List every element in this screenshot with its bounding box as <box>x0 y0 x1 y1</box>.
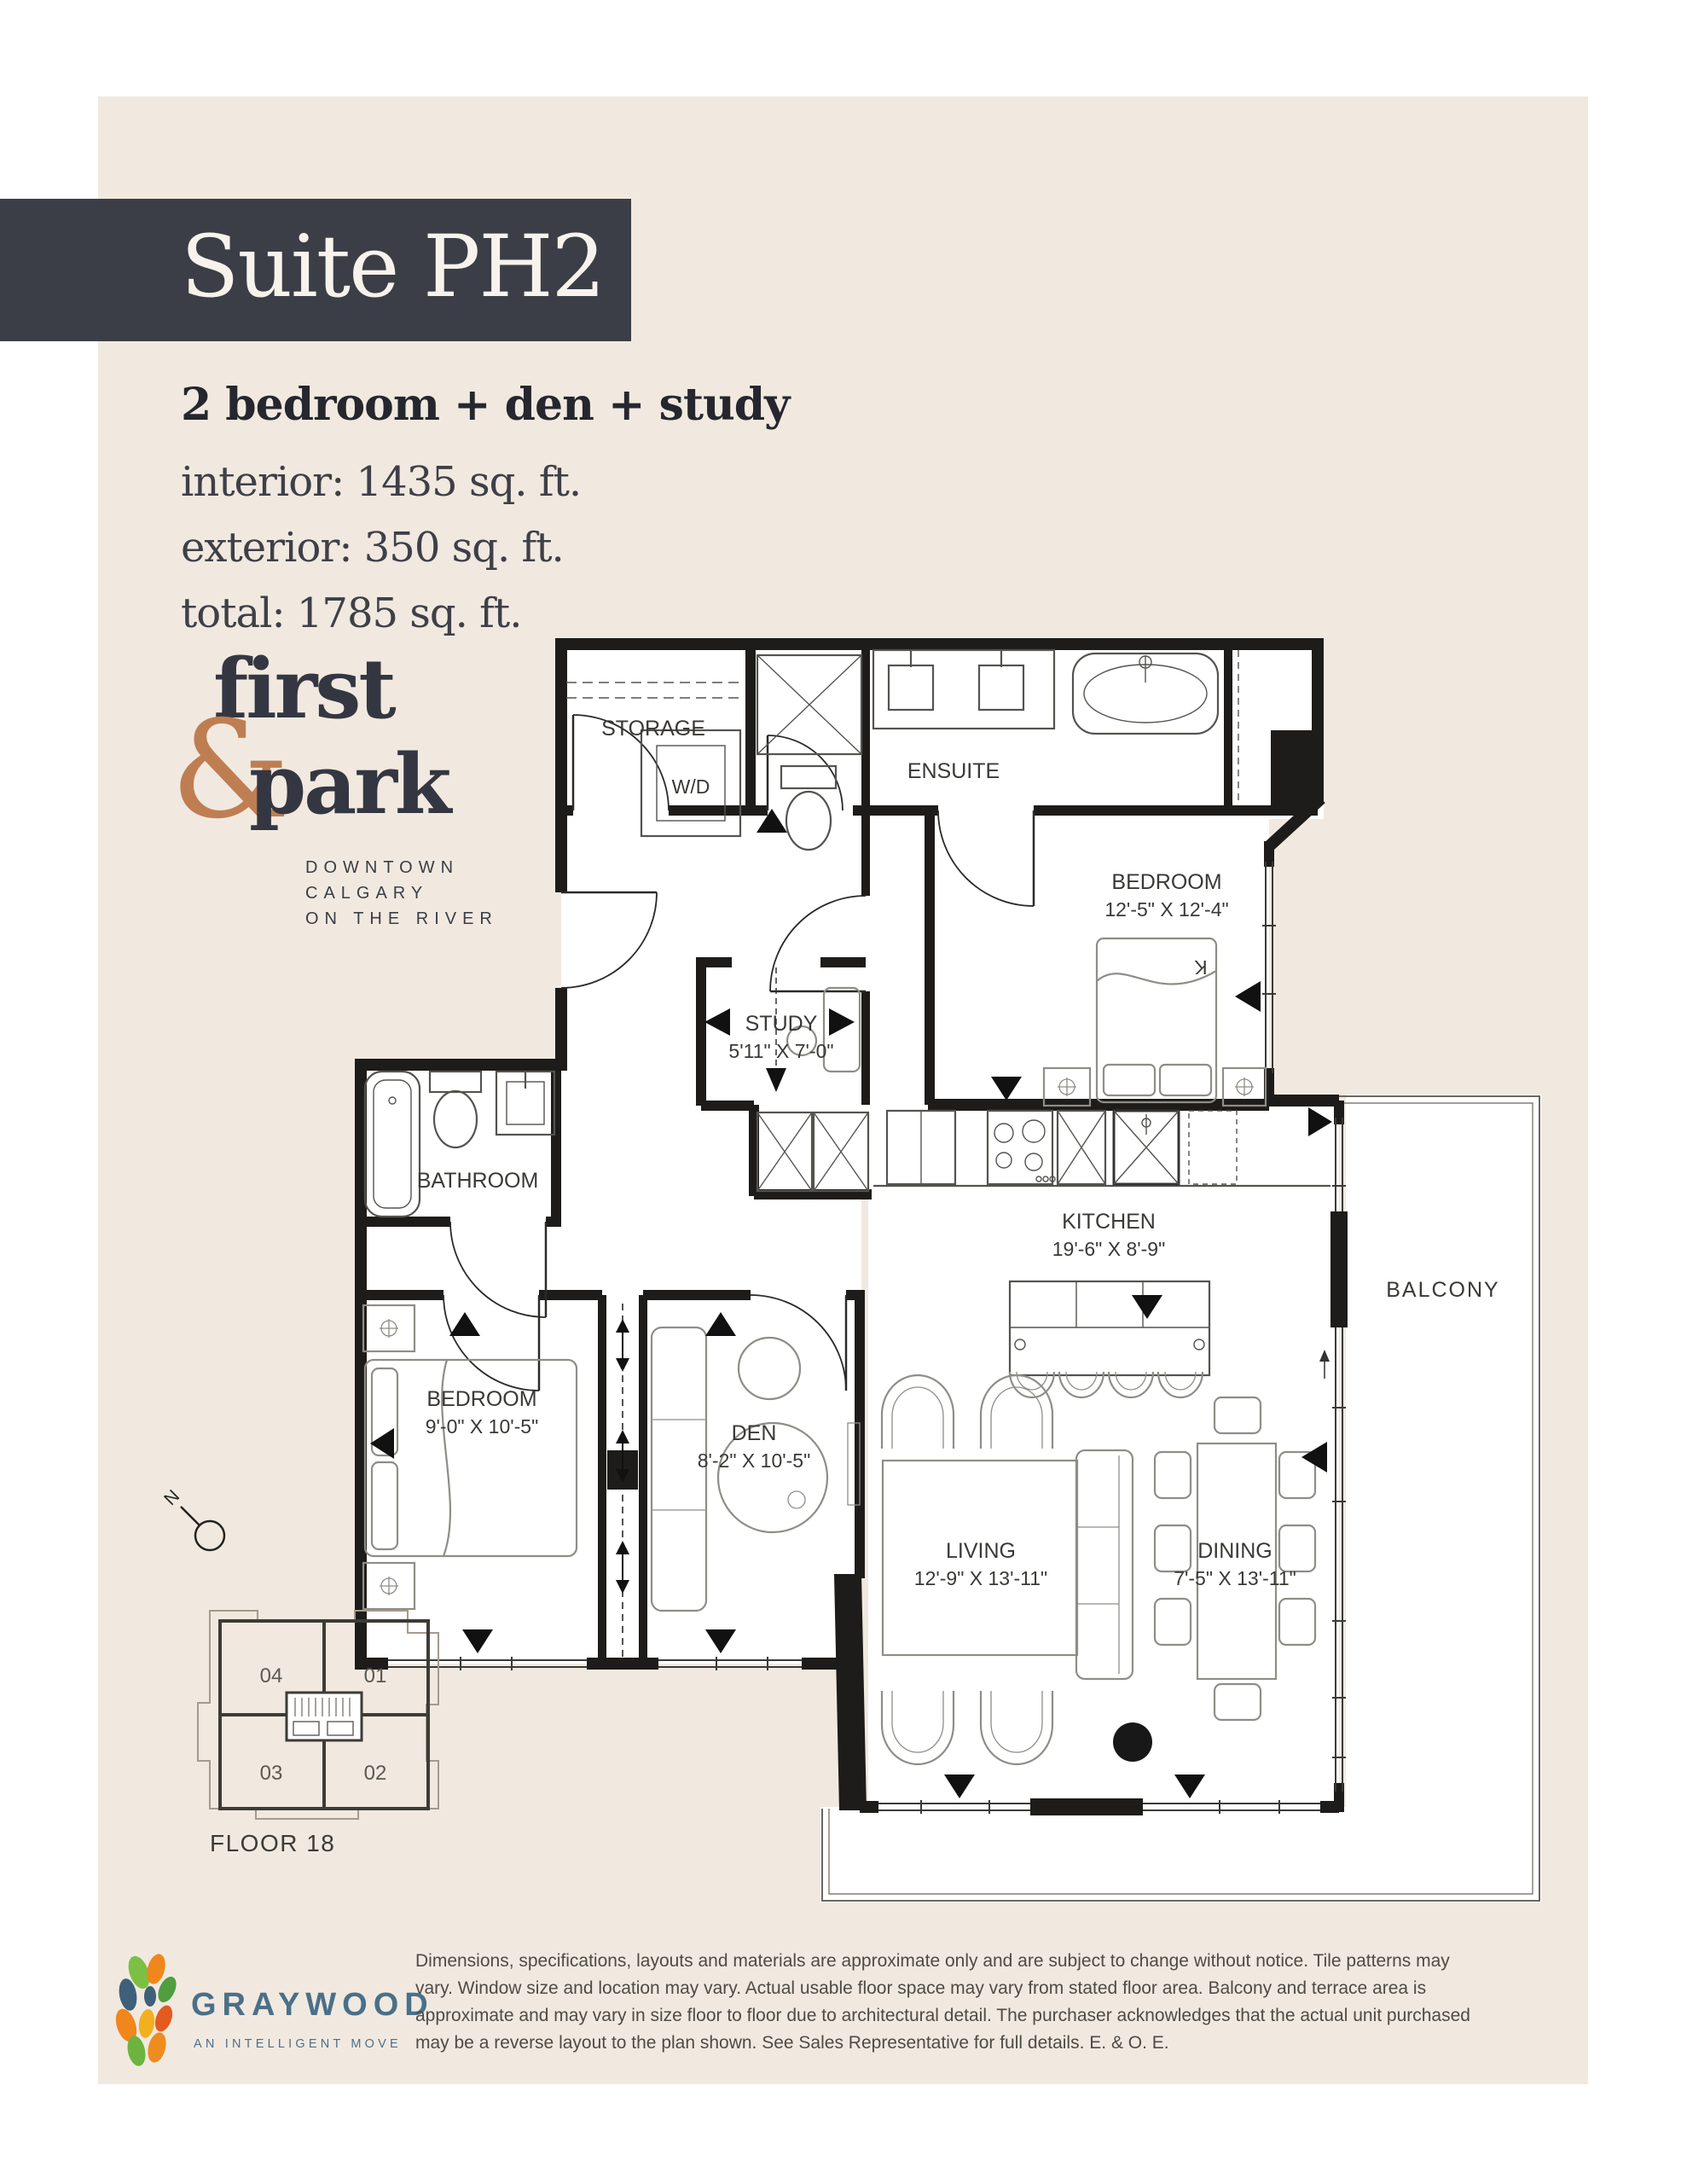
keyplan-floor-label: FLOOR 18 <box>210 1830 335 1856</box>
living-label: LIVING <box>946 1539 1016 1563</box>
storage-label: STORAGE <box>601 717 705 741</box>
keyplan-unit-04: 04 <box>260 1664 283 1687</box>
bedroom1-dims: 12'-5" X 12'-4" <box>1104 898 1228 921</box>
den-label: DEN <box>732 1421 777 1445</box>
developer-name: GRAYWOOD <box>191 1987 434 2023</box>
study-label: STUDY <box>745 1012 818 1036</box>
kitchen-label: KITCHEN <box>1062 1210 1156 1234</box>
developer-tagline: AN INTELLIGENT MOVE <box>194 2037 402 2051</box>
unit-floor <box>361 638 1541 1902</box>
north-marker: N <box>160 1486 183 1509</box>
bathroom-label: BATHROOM <box>417 1169 539 1193</box>
ensuite-label: ENSUITE <box>907 759 1000 783</box>
living-dims: 12'-9" X 13'-11" <box>914 1567 1047 1589</box>
north-arrow-icon: N <box>160 1486 224 1550</box>
washer-dryer-label: W/D <box>672 775 710 798</box>
study-dims: 5'11" X 7'-0" <box>728 1040 833 1062</box>
keyplan-unit-01: 01 <box>364 1664 387 1687</box>
king-bed-marker: K <box>1194 956 1208 979</box>
kitchen-dims: 19'-6" X 8'-9" <box>1052 1238 1166 1260</box>
bedroom2-label: BEDROOM <box>426 1387 536 1411</box>
balcony-label: BALCONY <box>1386 1278 1499 1302</box>
brochure-page: Suite PH2 2 bedroom + den + study interi… <box>0 0 1687 2184</box>
dining-dims: 7'-5" X 13'-11" <box>1174 1567 1296 1589</box>
bedroom1-label: BEDROOM <box>1111 870 1221 894</box>
den-dims: 8'-2" X 10'-5" <box>698 1449 811 1472</box>
disclaimer-text: Dimensions, specifications, layouts and … <box>415 1948 1488 2057</box>
floorplan-drawing: STORAGE W/D ENSUITE BEDROOM 12'-5" X 12'… <box>0 0 1687 2184</box>
keyplan-unit-02: 02 <box>364 1762 387 1785</box>
dining-label: DINING <box>1197 1539 1272 1563</box>
bedroom2-dims: 9'-0" X 10'-5" <box>426 1415 539 1438</box>
developer-logo-icon: GRAYWOOD AN INTELLIGENT MOVE <box>112 1952 433 2068</box>
keyplan-unit-03: 03 <box>260 1762 283 1785</box>
